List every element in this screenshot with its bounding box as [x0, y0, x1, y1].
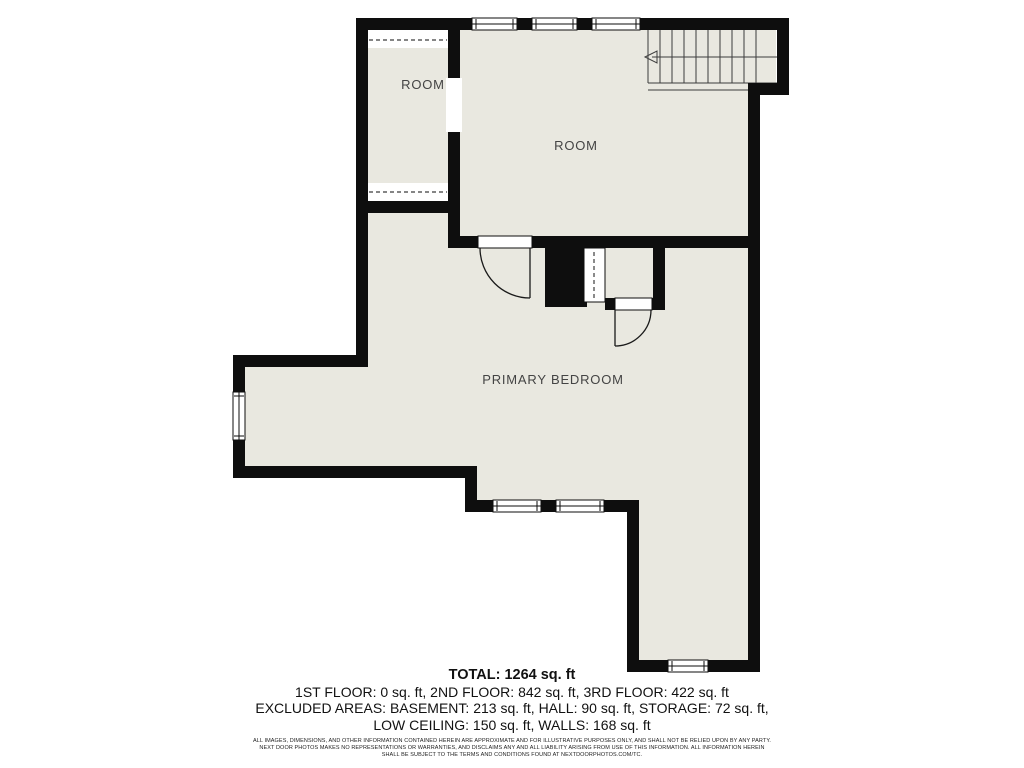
pocket-opening — [584, 248, 605, 302]
wall-room-small-bottom — [356, 201, 460, 213]
low-ceiling-strip-top — [368, 30, 448, 48]
room-label-large: ROOM — [554, 138, 598, 153]
excluded-areas-text-1: EXCLUDED AREAS: BASEMENT: 213 sq. ft, HA… — [0, 700, 1024, 717]
wall-closet-mass — [545, 248, 587, 307]
floor-plan-page: ROOM ROOM PRIMARY BEDROOM TOTAL: 1264 sq… — [0, 0, 1024, 768]
disclaimer-line-2: NEXT DOOR PHOTOS MAKES NO REPRESENTATION… — [0, 745, 1024, 752]
room-large-floor — [460, 30, 776, 236]
room-label-small: ROOM — [401, 77, 445, 92]
wall-bump-bottom — [233, 466, 477, 478]
disclaimer: ALL IMAGES, DIMENSIONS, AND OTHER INFORM… — [0, 738, 1024, 758]
window-top-3 — [592, 18, 640, 30]
floor-areas-text: 1ST FLOOR: 0 sq. ft, 2ND FLOOR: 842 sq. … — [0, 684, 1024, 701]
primary-bedroom-floor — [245, 213, 748, 660]
window-mid-2 — [556, 500, 604, 512]
wall-divider — [448, 18, 460, 248]
floor-plan: ROOM ROOM PRIMARY BEDROOM — [0, 0, 1024, 768]
wall-bump-top — [233, 355, 368, 367]
window-top-2 — [532, 18, 577, 30]
window-mid-1 — [493, 500, 541, 512]
wall-column-left — [627, 500, 639, 672]
window-top-1 — [472, 18, 517, 30]
area-summary: TOTAL: 1264 sq. ft 1ST FLOOR: 0 sq. ft, … — [0, 667, 1024, 733]
wall-left — [356, 18, 368, 367]
wall-right — [748, 83, 760, 672]
doorway-opening — [446, 78, 462, 132]
floor-areas — [245, 30, 776, 660]
room-small-floor — [368, 30, 448, 201]
total-area-text: TOTAL: 1264 sq. ft — [0, 667, 1024, 684]
excluded-areas-text-2: LOW CEILING: 150 sq. ft, WALLS: 168 sq. … — [0, 717, 1024, 734]
disclaimer-line-1: ALL IMAGES, DIMENSIONS, AND OTHER INFORM… — [0, 738, 1024, 745]
disclaimer-line-3: SHALL BE SUBJECT TO THE TERMS AND CONDIT… — [0, 752, 1024, 759]
room-label-primary-bedroom: PRIMARY BEDROOM — [482, 372, 624, 387]
wall-stepped-bottom — [465, 500, 639, 512]
window-left — [233, 392, 245, 440]
